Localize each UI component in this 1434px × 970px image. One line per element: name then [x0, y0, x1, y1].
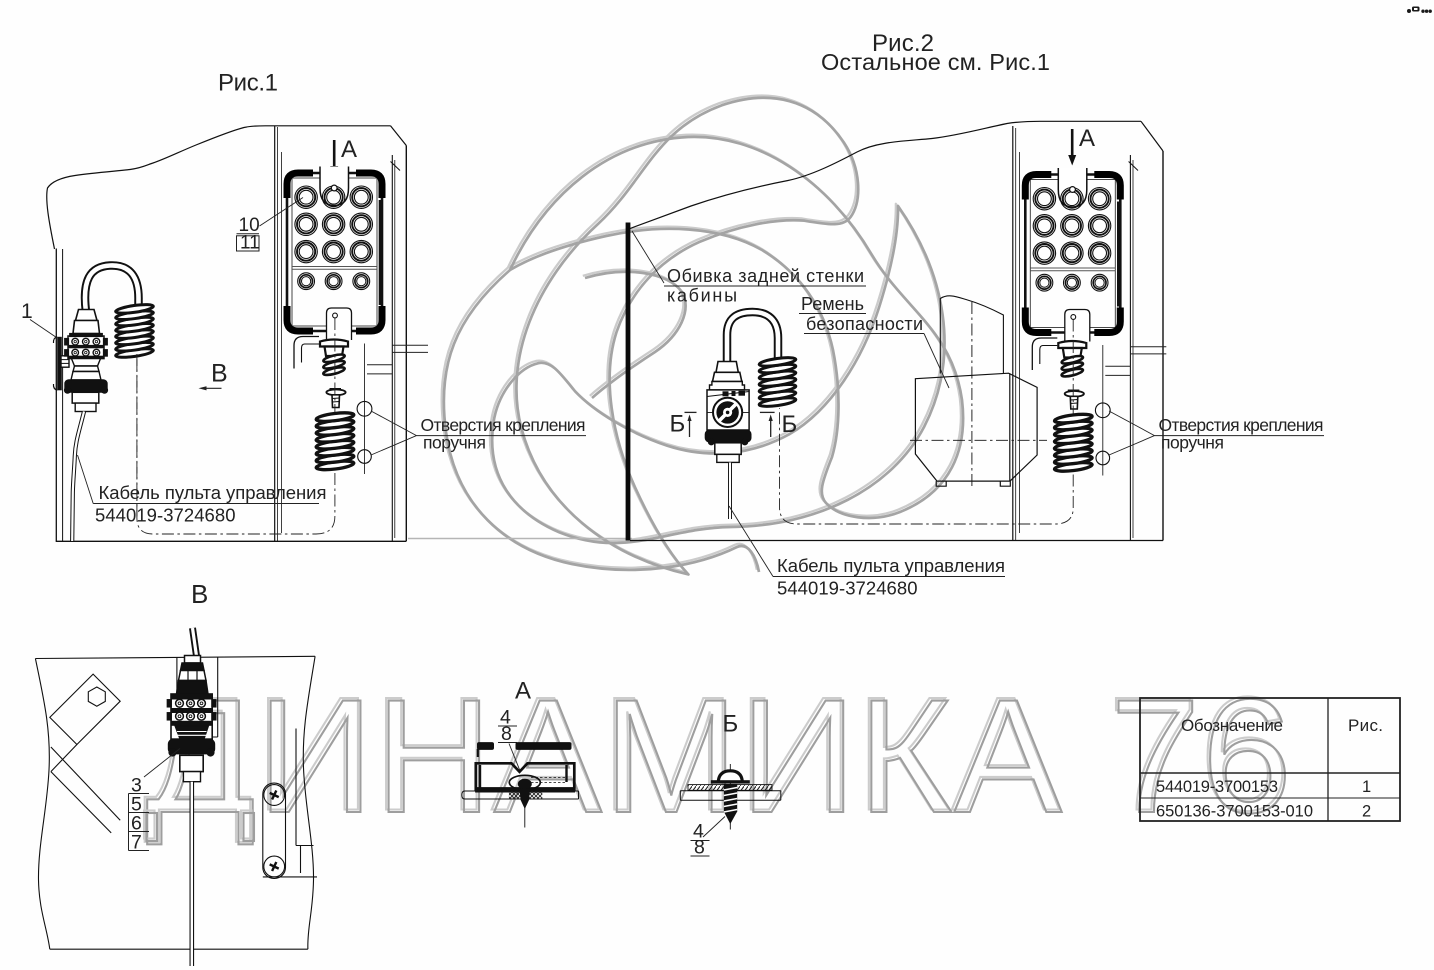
- svg-text:кабины: кабины: [667, 286, 737, 306]
- svg-text:Ремень: Ремень: [801, 294, 864, 314]
- svg-text:В: В: [211, 360, 228, 388]
- svg-text:Кабель пульта управления: Кабель пульта управления: [99, 482, 327, 503]
- svg-text:Кабель пульта управления: Кабель пульта управления: [777, 555, 1005, 576]
- svg-text:А: А: [515, 678, 531, 705]
- svg-text:А: А: [1079, 125, 1095, 152]
- svg-text:Остальное см. Рис.1: Остальное см. Рис.1: [821, 49, 1050, 75]
- svg-text:безопасности: безопасности: [806, 314, 923, 334]
- svg-text:Б: Б: [670, 411, 686, 438]
- svg-text:8: 8: [501, 723, 512, 745]
- svg-text:544019-3724680: 544019-3724680: [95, 505, 236, 526]
- svg-text:Обозначение: Обозначение: [1181, 716, 1283, 735]
- svg-text:Б: Б: [782, 411, 798, 438]
- svg-text:544019-3700153: 544019-3700153: [1156, 778, 1278, 796]
- svg-text:544019-3724680: 544019-3724680: [777, 578, 918, 599]
- svg-text:Рис.1: Рис.1: [218, 70, 278, 97]
- svg-text:А: А: [341, 136, 357, 163]
- svg-text:8: 8: [694, 837, 705, 859]
- svg-text:650136-3700153-010: 650136-3700153-010: [1156, 803, 1313, 821]
- svg-text:Рис.: Рис.: [1348, 716, 1383, 735]
- svg-text:2: 2: [1362, 803, 1371, 821]
- svg-text:В: В: [191, 579, 208, 609]
- svg-text:Обивка задней стенки: Обивка задней стенки: [667, 266, 864, 286]
- svg-text:1: 1: [1362, 778, 1371, 796]
- svg-text:ДИНАМИКА 76: ДИНАМИКА 76: [146, 666, 1292, 847]
- svg-text:Б: Б: [723, 711, 739, 738]
- svg-text:1: 1: [21, 300, 33, 323]
